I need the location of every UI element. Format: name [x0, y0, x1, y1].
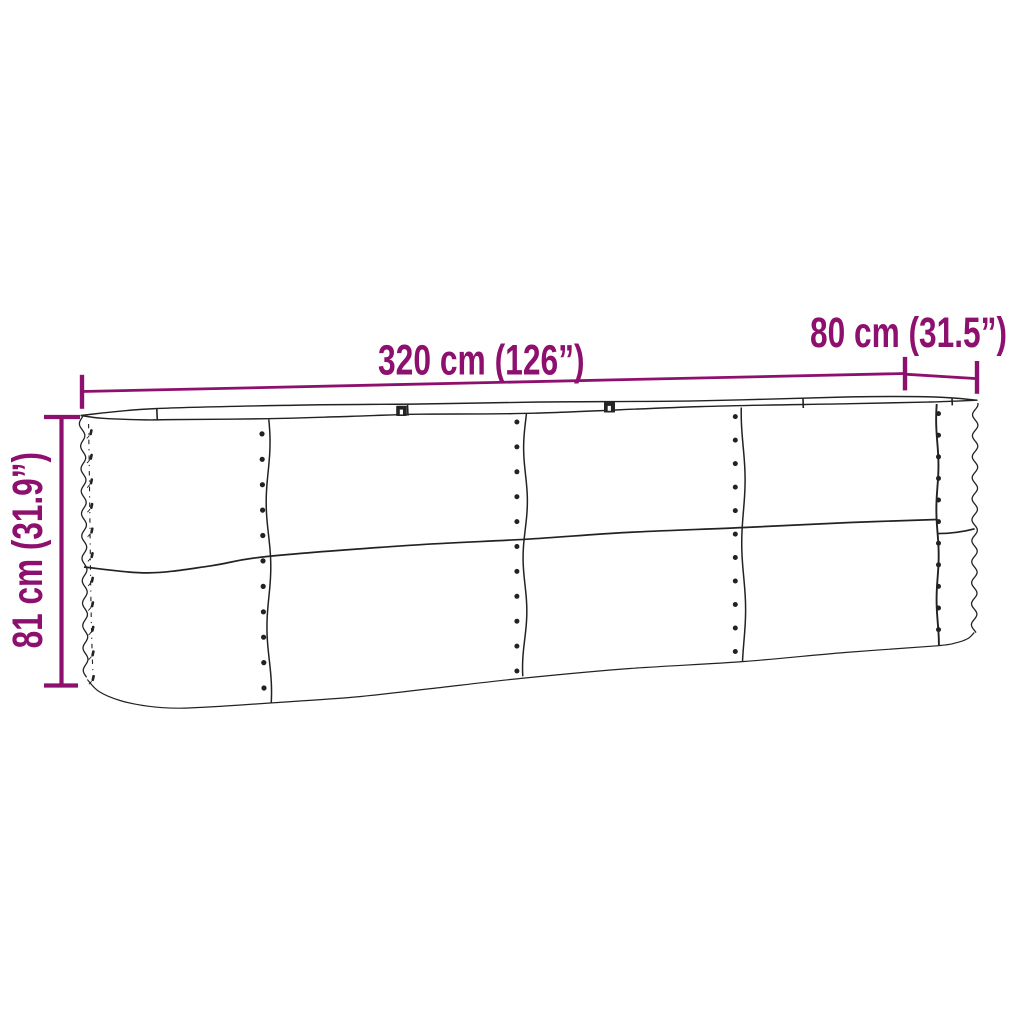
svg-text:81 cm (31.9”): 81 cm (31.9”)	[3, 452, 51, 648]
svg-text:320 cm (126”): 320 cm (126”)	[378, 337, 585, 385]
svg-text:80 cm (31.5”): 80 cm (31.5”)	[810, 308, 1007, 356]
